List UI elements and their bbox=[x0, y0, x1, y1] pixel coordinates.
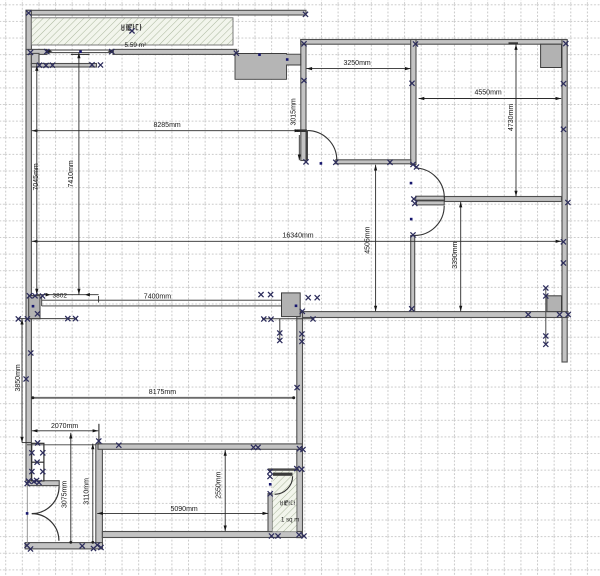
svg-text:5090mm: 5090mm bbox=[171, 506, 198, 513]
svg-text:2550mm: 2550mm bbox=[216, 471, 223, 498]
svg-text:8285mm: 8285mm bbox=[154, 122, 181, 129]
svg-text:3015mm: 3015mm bbox=[291, 98, 298, 125]
svg-text:3250mm: 3250mm bbox=[344, 60, 371, 67]
svg-text:1 sq m: 1 sq m bbox=[281, 517, 299, 524]
svg-text:3110mm: 3110mm bbox=[83, 478, 90, 505]
svg-text:4505mm: 4505mm bbox=[365, 226, 372, 253]
svg-text:7045mm: 7045mm bbox=[33, 163, 40, 190]
svg-text:4550mm: 4550mm bbox=[475, 90, 502, 97]
svg-text:7400mm: 7400mm bbox=[144, 293, 171, 300]
svg-text:5.59 m²: 5.59 m² bbox=[125, 42, 147, 49]
svg-text:4730mm: 4730mm bbox=[508, 104, 515, 131]
svg-text:3802: 3802 bbox=[53, 292, 68, 299]
svg-text:7410mm: 7410mm bbox=[68, 160, 75, 187]
svg-text:8175mm: 8175mm bbox=[149, 389, 176, 396]
svg-text:2070mm: 2070mm bbox=[51, 423, 78, 430]
svg-text:3390mm: 3390mm bbox=[452, 241, 459, 268]
svg-text:3075mm: 3075mm bbox=[61, 481, 68, 508]
svg-text:16340mm: 16340mm bbox=[283, 232, 314, 239]
svg-text:3850mm: 3850mm bbox=[15, 364, 22, 391]
